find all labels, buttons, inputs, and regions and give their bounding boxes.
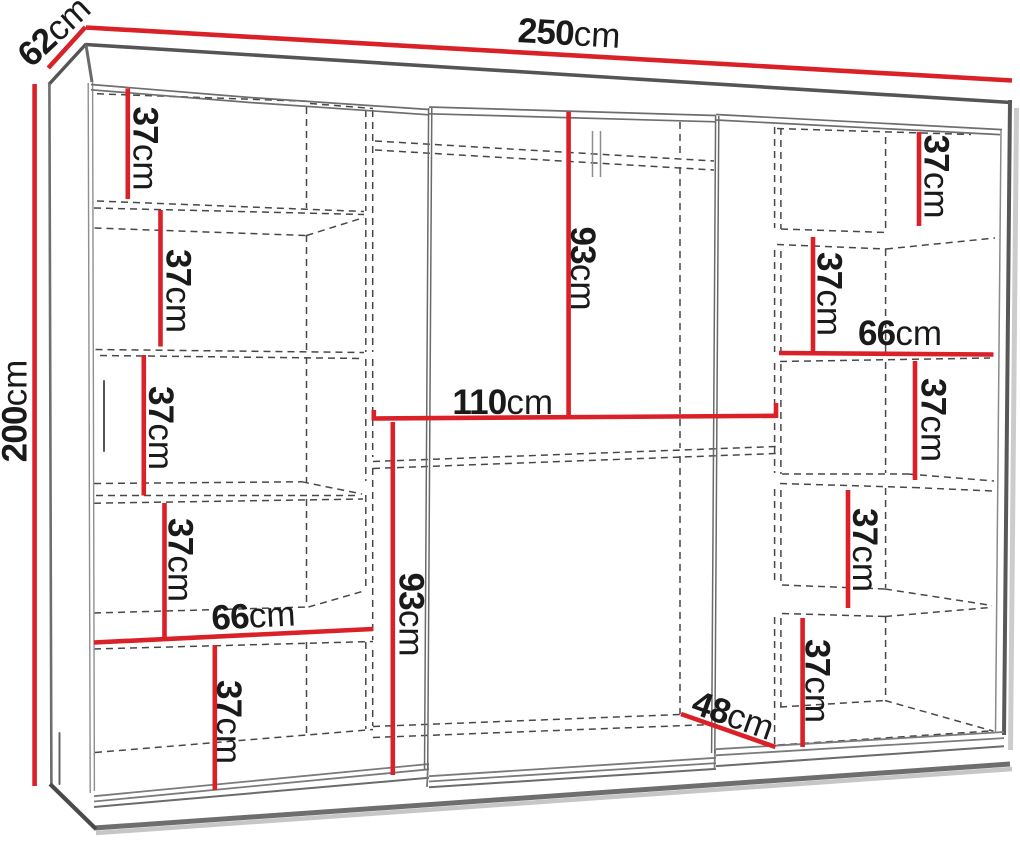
svg-text:37cm: 37cm <box>159 249 198 333</box>
svg-text:37cm: 37cm <box>917 135 956 219</box>
svg-text:66cm: 66cm <box>858 314 942 353</box>
svg-text:250cm: 250cm <box>517 11 622 56</box>
svg-text:37cm: 37cm <box>161 518 200 602</box>
svg-text:37cm: 37cm <box>914 378 953 462</box>
svg-text:37cm: 37cm <box>798 639 837 723</box>
svg-text:66cm: 66cm <box>210 594 296 637</box>
svg-text:37cm: 37cm <box>209 680 248 764</box>
svg-text:37cm: 37cm <box>126 107 165 191</box>
svg-text:93cm: 93cm <box>563 227 602 311</box>
svg-text:93cm: 93cm <box>392 573 431 657</box>
svg-text:110cm: 110cm <box>452 383 553 422</box>
svg-text:200cm: 200cm <box>0 360 35 463</box>
svg-text:37cm: 37cm <box>141 386 180 470</box>
svg-text:37cm: 37cm <box>810 252 849 336</box>
svg-text:37cm: 37cm <box>845 508 884 592</box>
